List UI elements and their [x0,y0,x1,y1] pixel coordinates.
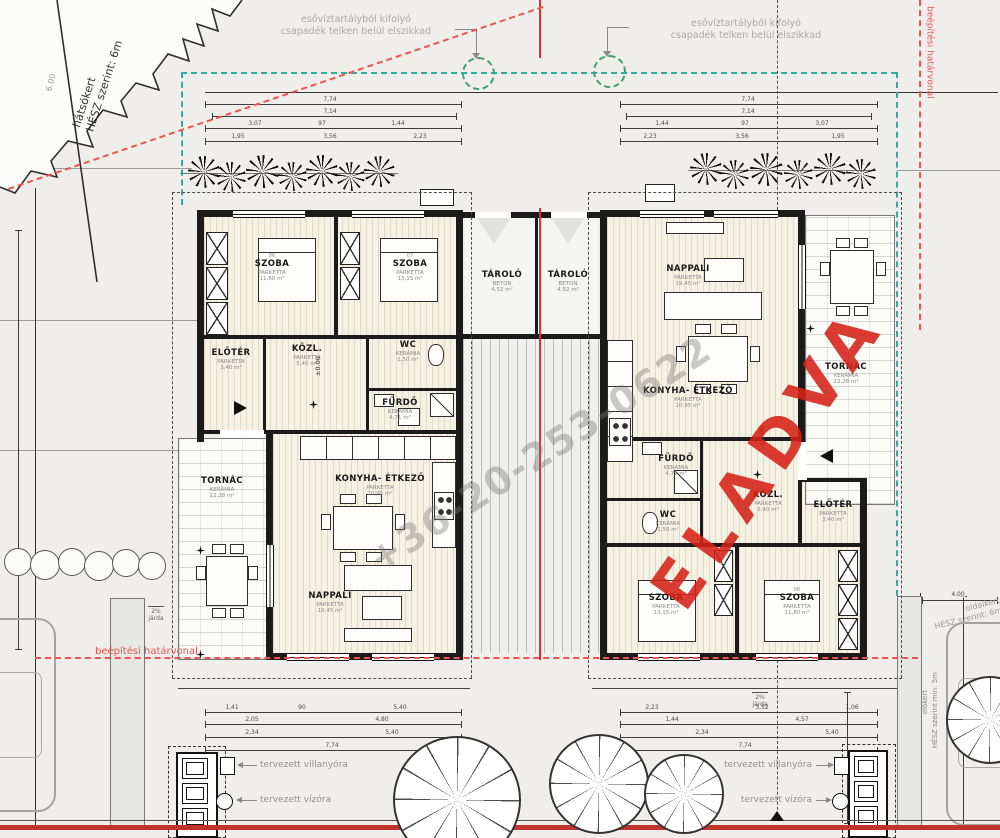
roof-overhang [901,192,902,678]
dimension-text: 5,40 [384,729,399,736]
wardrobe [206,267,228,300]
shrub-icon [188,156,220,188]
dimension-text: 3,56 [734,133,749,140]
dimension-text: 3,07 [814,120,829,127]
dimension-line [205,104,462,105]
window [352,210,424,218]
room-area: 10,95 m² [335,491,425,497]
slope-percent: 2% [752,694,768,701]
dimension-text: 7,74 [737,742,752,749]
shrub-icon [784,160,813,189]
shrub-icon [364,156,395,187]
bush-icon [30,550,60,580]
shrub-icon [814,153,846,185]
wall [860,478,867,660]
room-name: TÁROLÓ [548,271,588,281]
dimension-text: 7,74 [324,742,339,749]
dimension-line [620,104,878,105]
axis-marker-icon [770,811,784,821]
room-name: SZOBA [255,260,290,270]
shrub-icon [278,162,307,191]
wardrobe [206,232,228,265]
room-name: NAPPALI [308,592,351,602]
room-label-szoba: 06 SZOBA PARKETTA 11,80 m² [780,588,815,616]
legend-electric-label: tervezett villanyóra [700,760,812,772]
door-swing [551,218,585,244]
roof-overhang [172,192,472,193]
dimension-line [620,737,878,738]
legend-water-label: tervezett vízóra [260,795,331,807]
wardrobe [838,618,858,650]
wall [263,339,266,432]
site-line [897,170,1000,171]
room-name: WC [396,341,421,351]
room-area: 4,71 m² [658,471,694,477]
legend-line [816,765,828,766]
electric-meter-icon [834,757,849,775]
water-meter-icon [832,793,849,810]
room-area: 4,52 m² [548,287,588,293]
window [266,545,274,607]
entrance-arrow-icon [820,449,833,463]
room-label-nappali: NAPPALI PARKETTA 19,45 m² [308,592,351,614]
dimension-line [205,141,462,142]
dimension-line [205,737,462,738]
chair [721,324,737,334]
furniture-pillow [380,238,438,253]
wall [197,210,204,442]
tv-bench [666,222,724,234]
rain-note-line2: csapadék telken belül elszikkad [250,26,462,38]
facade-line [178,688,470,689]
meter-box [854,806,878,827]
wall [462,334,605,339]
dimension-text: 4,00 [950,591,965,598]
room-label-eloter: ELŐTÉR PARKETTA 3,40 m² [814,501,853,523]
chair [248,566,258,580]
legend-line [243,765,257,766]
bush-icon [4,548,32,576]
dimension-line [205,724,462,725]
site-line [0,320,197,321]
meter-box [854,781,878,802]
room-area: 22,28 m² [201,493,243,499]
room-name: KÖZL. [292,345,322,355]
rain-note-line1: esővíztartályból kifolyó [638,18,854,30]
chair [854,238,868,248]
door-swing [477,218,511,244]
water-meter-icon [216,793,233,810]
dimension-line [620,141,878,142]
dimension-text: 2,23 [644,704,659,711]
wall [798,482,802,547]
room-label-tornac: TORNÁC KERÁMIA 22,28 m² [201,477,243,499]
dimension-line [212,116,457,117]
shrub-icon [246,155,279,188]
meter-box [182,783,208,804]
regulation-line-top [181,72,897,74]
regulation-line-left [181,72,183,205]
meter-box [182,758,208,779]
dimension-text: 2,23 [412,133,427,140]
room-name: TORNÁC [201,477,243,487]
shrub-icon [846,159,876,189]
shrub-icon [306,155,338,187]
slope-percent: 2% [148,608,164,615]
rain-note-line2: csapadék telken belül elszikkad [638,30,854,42]
tree-icon [549,734,649,834]
room-label-furdo: FÜRDŐ KERÁMIA 4,71 m² [382,399,418,421]
downpipe [607,27,629,28]
room-label-nappali: NAPPALI PARKETTA 19,45 m² [666,265,709,287]
wall [334,210,338,339]
room-area: 19,45 m² [666,281,709,287]
slope-label: járda [148,615,164,622]
site-line [0,450,178,451]
room-label-szoba: 07 SZOBA PARKETTA 13,15 m² [393,254,428,282]
room-label-tarolo: TÁROLÓ BETON 4,52 m² [548,271,588,293]
dimension-line [620,128,878,129]
chair [196,566,206,580]
room-area: 3,40 m² [814,517,853,523]
chair [836,238,850,248]
dimension-text: 7,74 [322,96,337,103]
room-area: 3,40 m² [212,365,251,371]
downpipe [476,29,477,55]
window [233,210,305,218]
chair [750,346,760,362]
toilet [428,344,444,366]
meter-box [854,756,878,777]
bush-icon [112,549,140,577]
room-label-szoba: 06 SZOBA PARKETTA 11,80 m² [255,254,290,282]
dimension-line [620,750,878,751]
room-name: FÜRDŐ [658,455,694,465]
room-area: 13,15 m² [393,276,428,282]
dimension-line [620,712,878,713]
dimension-text: 2,23 [642,133,657,140]
chair [321,514,331,530]
dimension-text: 97 [740,120,750,127]
roof-overhang [471,192,472,678]
wardrobe [838,584,858,616]
chair [212,608,226,618]
chair [212,544,226,554]
shrub-icon [720,160,749,189]
downpipe [607,27,608,53]
entrance-arrow-icon [234,401,247,415]
wall [798,478,867,482]
walkway-strip [110,598,145,828]
wardrobe [206,302,228,335]
sidewalk-slope-left: 2% járda [148,606,164,622]
arrow-down-icon [472,53,480,59]
legend-line [242,800,257,801]
window [714,210,778,218]
room-name: SZOBA [393,260,428,270]
room-name: SZOBA [780,594,815,604]
frontyard-note-2: HÉSZ szerint min: 5m [931,672,940,748]
soakaway-box [645,184,675,202]
dimension-text: 5,40 [392,704,407,711]
room-label-furdo: FÜRDŐ KERÁMIA 4,71 m² [658,455,694,477]
dimension-text: 97 [317,120,327,127]
wall [535,218,538,334]
dimension-text: 3,07 [247,120,262,127]
roof-overhang [588,192,902,193]
room-floor: PARKETTA [255,269,290,275]
wall [456,210,463,660]
tree-icon [644,754,724,834]
building-limit-label: beépítési határvonal [95,645,198,658]
dimension-text: 1,44 [664,716,679,723]
facade-line [592,688,904,689]
roof-overhang [172,192,173,678]
bush-icon [58,548,86,576]
legend-electric-label: tervezett villanyóra [260,760,348,772]
dimension-text: 1,41 [224,704,239,711]
chair [230,608,244,618]
electric-meter-icon [220,757,235,775]
top-reference-line [205,92,998,93]
wall [600,498,700,501]
dimension-text: 90 [297,704,307,711]
shower [430,393,454,417]
shrub-icon [750,153,783,186]
shrub-icon [336,162,365,191]
room-name: ELŐTÉR [814,501,853,511]
dimension-text: 2,34 [694,729,709,736]
rain-tank-icon [462,57,495,90]
arrow-down-icon [603,51,611,57]
room-area: 4,52 m² [482,287,522,293]
building-limit-label-vertical: beépítési határvonal [923,6,935,99]
wardrobe [838,550,858,582]
frontyard-note-1: előkert [921,690,930,714]
dimension-text: 2,34 [244,729,259,736]
dimension-text: 7,74 [740,96,755,103]
room-area: 11,80 m² [255,276,290,282]
building-limit-vertical [919,0,921,330]
window [798,245,806,309]
wall [366,388,463,391]
room-area: 19,45 m² [308,608,351,614]
wardrobe [340,267,360,300]
door-opening [220,430,264,438]
shrub-icon [690,153,722,185]
dimension-text: 1,44 [654,120,669,127]
room-name: ELŐTÉR [212,349,251,359]
roof-overhang [172,678,472,679]
car-roof [0,672,42,758]
room-name: TÁROLÓ [482,271,522,281]
floor-plan-drawing: hátsókert HÉSZ szerint: 6m 6.00 beépítés… [0,0,1000,838]
room-area: 11,80 m² [780,610,815,616]
room-label-kozl: KÖZL. PARKETTA 5,40 m² [292,345,322,367]
rain-note-right: esővíztartályból kifolyó csapadék telken… [638,18,854,43]
wall [366,339,369,432]
rain-note-left: esővíztartályból kifolyó csapadék telken… [250,14,462,39]
chair [230,544,244,554]
room-label-konyha: KONYHA- ÉTKEZŐ PARKETTA 10,95 m² [335,475,425,497]
dimension-text: 1,95 [230,133,245,140]
sidewalk-slope-right: 2% járda [752,692,768,708]
window [640,210,704,218]
chair [876,262,886,276]
room-name: KONYHA- ÉTKEZŐ [335,475,425,485]
room-floor: PARKETTA [393,269,428,275]
tv-bench [344,628,412,642]
rain-note-line1: esővíztartályból kifolyó [250,14,462,26]
chair [820,262,830,276]
room-label-eloter: ELŐTÉR PARKETTA 3,40 m² [212,349,251,371]
kitchen-counter [300,436,456,460]
dimension-text: 5,40 [824,729,839,736]
room-area: 4,71 m² [382,415,418,421]
room-name: WC [656,511,681,521]
room-area: 13,15 m² [649,610,684,616]
room-label-tarolo: TÁROLÓ BETON 4,52 m² [482,271,522,293]
roof-overhang [588,678,902,679]
dimension-text: 2,05 [244,716,259,723]
furniture-pillow [258,238,316,253]
dimension-line [620,724,878,725]
slope-label: járda [752,701,768,708]
dimension-line [205,712,462,713]
dimension-text: 4,80 [374,716,389,723]
shrub-icon [216,162,246,192]
porch-table [206,556,248,606]
bush-icon [138,552,166,580]
room-name: FÜRDŐ [382,399,418,409]
dimension-text: 1,44 [390,120,405,127]
dimension-text: 7,14 [322,108,337,115]
dimension-text: 7,14 [740,108,755,115]
room-label-wc: WC KERÁMIA 1,50 m² [396,341,421,363]
dimension-text: 1,95 [830,133,845,140]
dimension-line [18,230,19,650]
wall [197,335,463,339]
sofa [664,292,762,320]
dimension-text: 3,56 [322,133,337,140]
room-area: 5,40 m² [292,361,322,367]
coffee-table [704,258,744,282]
tree-icon [393,736,521,838]
dimension-line [626,116,872,117]
rain-tank-icon [593,55,626,88]
coffee-table [362,596,402,620]
wardrobe [340,232,360,265]
room-area: 1,50 m² [396,357,421,363]
bush-icon [84,551,114,581]
room-name: NAPPALI [666,265,709,275]
dimension-line [205,128,462,129]
room-floor: PARKETTA [780,603,815,609]
dimension-text: 4,57 [794,716,809,723]
legend-line [816,800,826,801]
